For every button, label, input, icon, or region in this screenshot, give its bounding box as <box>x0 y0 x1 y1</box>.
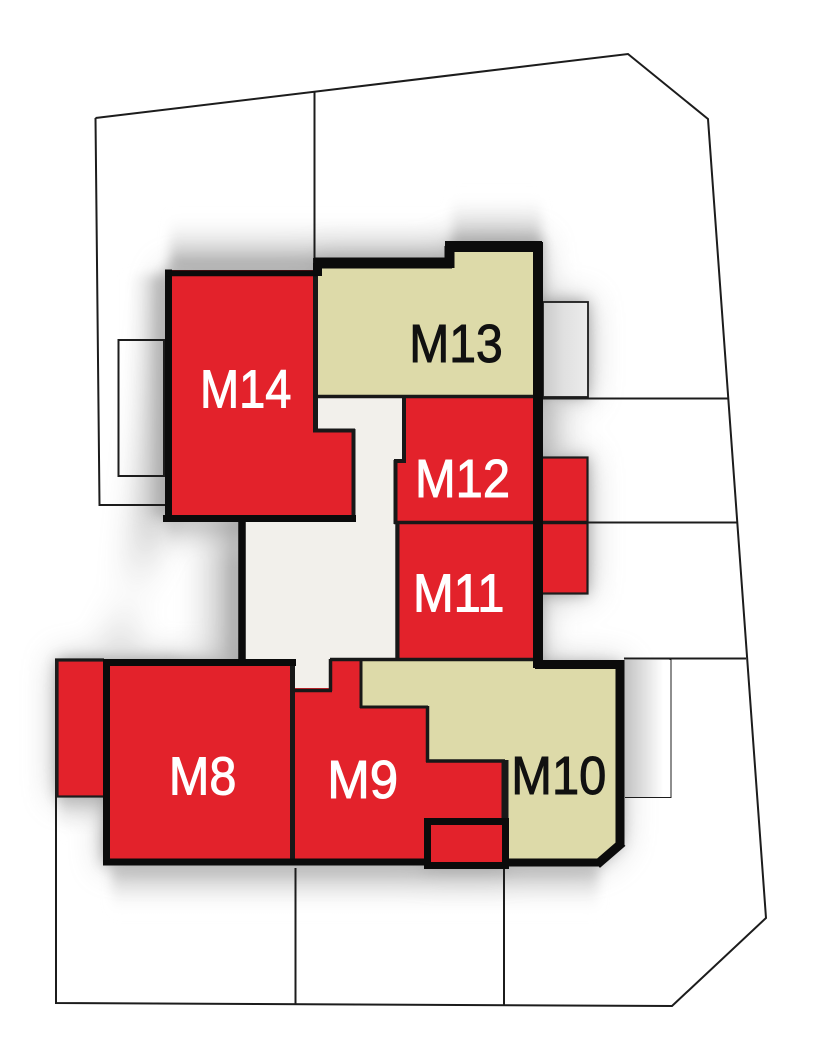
svg-text:M12: M12 <box>415 449 510 509</box>
svg-text:M8: M8 <box>169 746 237 806</box>
svg-text:M14: M14 <box>200 359 292 419</box>
svg-text:M13: M13 <box>409 314 503 374</box>
svg-text:M9: M9 <box>327 750 398 810</box>
svg-text:M11: M11 <box>413 564 505 624</box>
svg-text:M10: M10 <box>511 746 606 806</box>
